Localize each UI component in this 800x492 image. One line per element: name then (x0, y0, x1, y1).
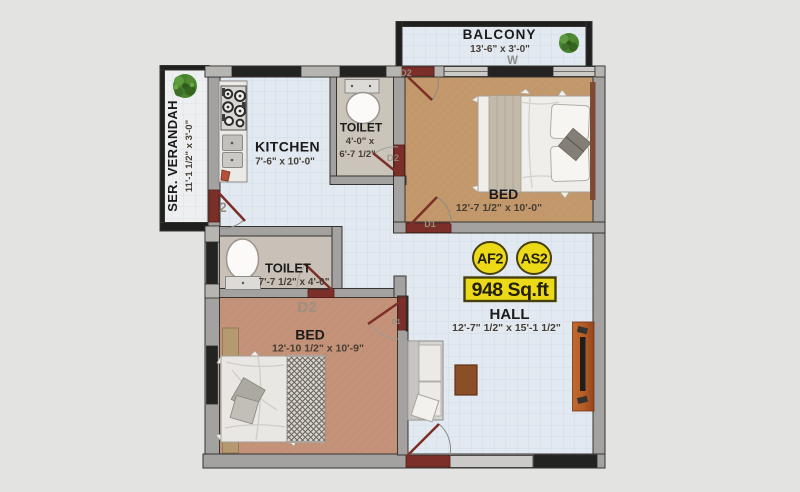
svg-text:2: 2 (219, 200, 227, 215)
svg-text:W: W (507, 55, 518, 67)
svg-text:11'-1 1/2" x 3'-0": 11'-1 1/2" x 3'-0" (184, 120, 195, 192)
svg-text:6'-7 1/2": 6'-7 1/2" (339, 149, 375, 160)
svg-text:TOILET: TOILET (265, 261, 311, 276)
svg-text:TOILET: TOILET (340, 121, 383, 135)
svg-text:D2: D2 (297, 299, 316, 316)
svg-text:AS2: AS2 (521, 252, 548, 268)
svg-text:12'-7" 1/2" x 15'-1 1/2": 12'-7" 1/2" x 15'-1 1/2" (452, 322, 561, 334)
svg-text:D1: D1 (392, 319, 401, 326)
svg-text:KITCHEN: KITCHEN (255, 139, 320, 155)
svg-text:D2: D2 (387, 153, 399, 164)
svg-text:D1: D1 (424, 219, 436, 229)
svg-text:13'-6" x 3'-0": 13'-6" x 3'-0" (470, 44, 530, 55)
svg-text:AF2: AF2 (477, 252, 503, 268)
svg-text:12'-7 1/2" x 10'-0": 12'-7 1/2" x 10'-0" (456, 202, 542, 214)
svg-text:7'-7 1/2" x 4'-0": 7'-7 1/2" x 4'-0" (259, 277, 330, 288)
svg-text:BALCONY: BALCONY (463, 27, 537, 42)
svg-text:12'-10 1/2" x 10'-9": 12'-10 1/2" x 10'-9" (272, 343, 364, 355)
svg-text:HALL: HALL (490, 306, 530, 323)
svg-text:SER. VERANDAH: SER. VERANDAH (165, 100, 180, 212)
svg-text:4'-0" x: 4'-0" x (346, 136, 375, 147)
svg-text:BED: BED (489, 186, 519, 202)
svg-text:948 Sq.ft: 948 Sq.ft (472, 279, 550, 301)
svg-text:D2: D2 (400, 68, 412, 78)
svg-text:7'-6" x 10'-0": 7'-6" x 10'-0" (255, 157, 315, 168)
svg-text:BED: BED (295, 327, 325, 343)
